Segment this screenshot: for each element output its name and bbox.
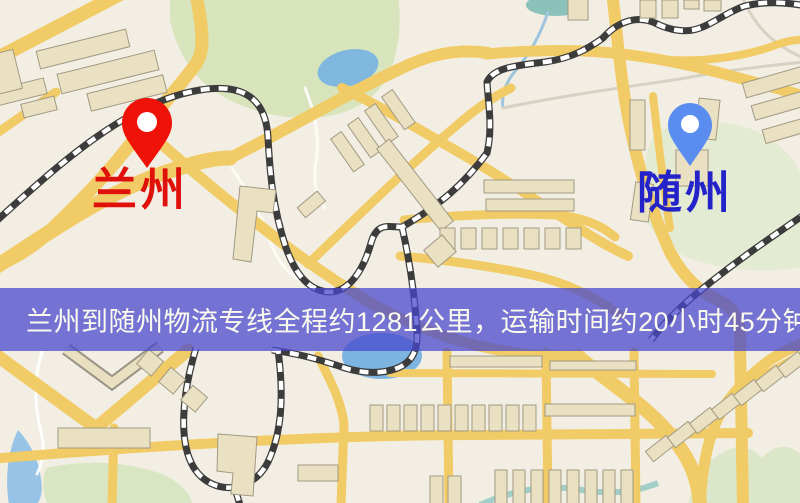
- origin-pin-icon[interactable]: [118, 95, 176, 173]
- destination-pin-icon[interactable]: [664, 101, 716, 169]
- map-container: 兰州 随州 兰州到随州物流专线全程约1281公里，运输时间约20小时45分钟.: [0, 0, 800, 503]
- origin-label: 兰州: [92, 168, 188, 213]
- route-info-text: 兰州到随州物流专线全程约1281公里，运输时间约20小时45分钟.: [0, 300, 800, 339]
- map-canvas[interactable]: [0, 0, 800, 503]
- destination-label: 随州: [637, 171, 733, 216]
- route-info-banner: 兰州到随州物流专线全程约1281公里，运输时间约20小时45分钟.: [0, 288, 800, 351]
